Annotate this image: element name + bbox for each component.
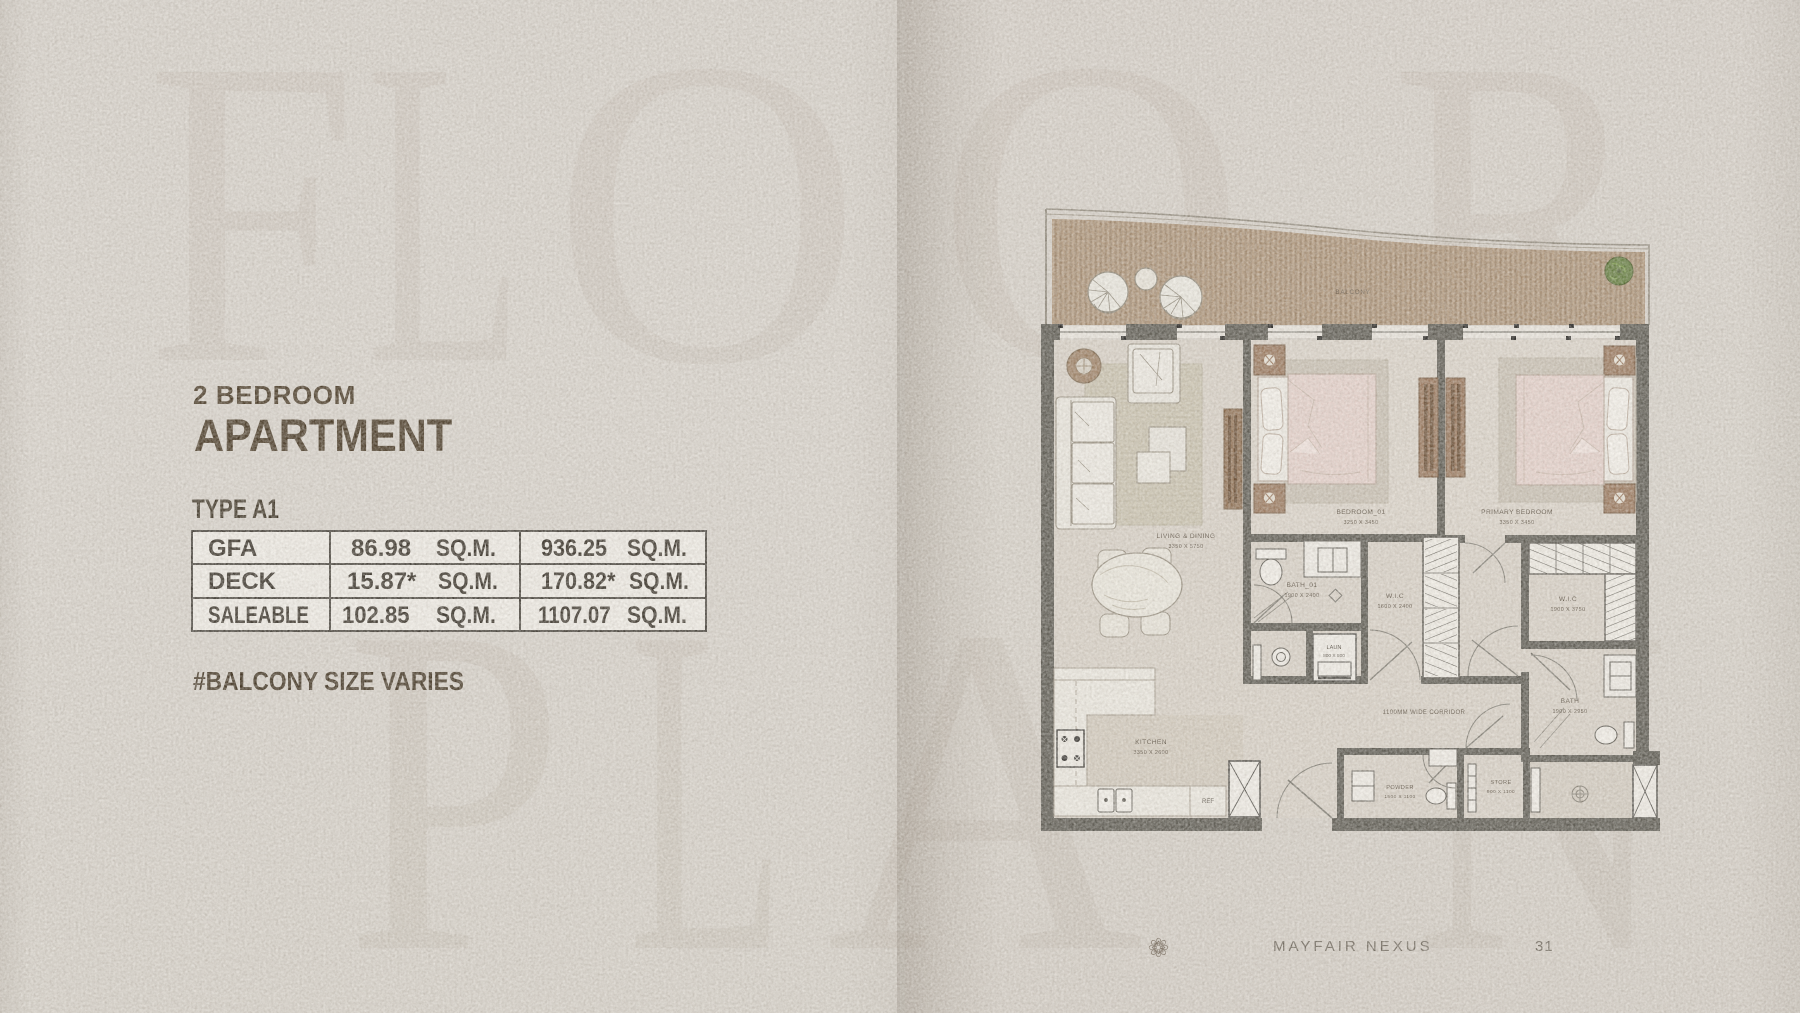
svg-text:BATH_01: BATH_01	[1287, 582, 1318, 589]
svg-text:3250 X 3450: 3250 X 3450	[1344, 520, 1379, 526]
svg-text:BATH: BATH	[1561, 698, 1580, 705]
svg-text:3350 X 2600: 3350 X 2600	[1134, 750, 1169, 756]
svg-text:LAUN: LAUN	[1327, 645, 1342, 651]
svg-text:800 X 800: 800 X 800	[1323, 653, 1345, 659]
svg-text:W.I.C: W.I.C	[1559, 596, 1577, 603]
svg-text:3350 X 3450: 3350 X 3450	[1500, 520, 1535, 526]
svg-text:REF: REF	[1202, 799, 1214, 805]
svg-text:1900 X 2950: 1900 X 2950	[1553, 709, 1588, 715]
svg-text:KITCHEN: KITCHEN	[1135, 739, 1167, 746]
svg-text:BEDROOM_01: BEDROOM_01	[1336, 509, 1385, 516]
svg-text:STORE: STORE	[1490, 780, 1511, 786]
svg-text:PRIMARY BEDROOM: PRIMARY BEDROOM	[1481, 509, 1553, 516]
svg-text:900 X 1100: 900 X 1100	[1487, 789, 1515, 795]
svg-text:1500 X 1100: 1500 X 1100	[1384, 794, 1415, 800]
svg-text:BALCONY: BALCONY	[1335, 289, 1370, 296]
svg-text:3350 X 5750: 3350 X 5750	[1169, 544, 1204, 550]
svg-text:1900 X 3750: 1900 X 3750	[1551, 607, 1586, 613]
svg-text:LIVING & DINING: LIVING & DINING	[1157, 533, 1216, 540]
svg-text:POWDER: POWDER	[1386, 785, 1414, 791]
svg-text:W.I.C: W.I.C	[1386, 593, 1404, 600]
svg-text:1100MM WIDE CORRIDOR: 1100MM WIDE CORRIDOR	[1383, 710, 1466, 716]
svg-text:1900 X 2400: 1900 X 2400	[1285, 593, 1320, 599]
svg-text:1600 X 2400: 1600 X 2400	[1378, 604, 1413, 610]
